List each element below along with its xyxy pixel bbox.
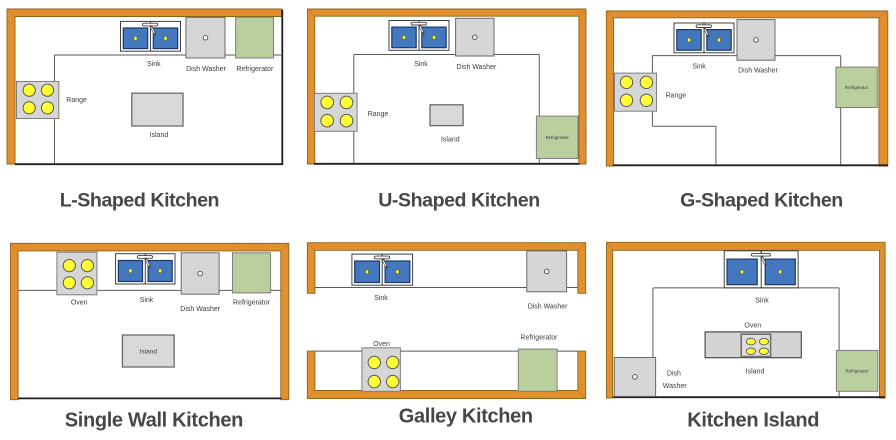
svg-text:Oven: Oven [71,299,88,306]
svg-text:Refrigerator: Refrigerator [846,368,870,373]
svg-text:Sink: Sink [692,64,706,71]
svg-text:Galley Kitchen: Galley Kitchen [399,406,533,428]
svg-text:Refrigerator: Refrigerator [233,299,271,306]
svg-text:Dish Washer: Dish Washer [180,306,220,313]
svg-text:Island: Island [746,368,765,375]
svg-text:Dish Washer: Dish Washer [456,64,496,71]
svg-text:Refrigerator: Refrigerator [236,66,274,73]
svg-text:Oven: Oven [744,322,761,329]
svg-text:Island: Island [150,132,169,139]
svg-text:Sink: Sink [140,297,154,304]
svg-text:Range: Range [66,97,87,104]
svg-text:Dish Washer: Dish Washer [186,66,226,73]
svg-text:Sink: Sink [755,298,769,305]
svg-text:L-Shaped Kitchen: L-Shaped Kitchen [60,190,219,212]
svg-text:Island: Island [441,136,460,143]
svg-text:Kitchen Island: Kitchen Island [687,410,819,432]
svg-text:Oven: Oven [373,341,390,348]
svg-text:G-Shaped Kitchen: G-Shaped Kitchen [680,190,843,212]
svg-text:Single Wall Kitchen: Single Wall Kitchen [65,410,243,432]
svg-text:Sink: Sink [414,61,428,68]
svg-text:Washer: Washer [663,383,688,390]
svg-text:Sink: Sink [374,295,388,302]
svg-text:Island: Island [140,349,158,356]
svg-text:U-Shaped Kitchen: U-Shaped Kitchen [378,190,540,212]
svg-text:Dish Washer: Dish Washer [738,67,778,74]
svg-text:Dish Washer: Dish Washer [528,303,568,310]
svg-text:Refrigerator: Refrigerator [845,85,869,90]
svg-text:Sink: Sink [147,61,161,68]
svg-text:Range: Range [368,111,389,118]
svg-text:Dish: Dish [667,370,681,377]
svg-text:Refrigerator: Refrigerator [546,135,570,140]
svg-text:Refrigerator: Refrigerator [521,334,559,341]
svg-text:Range: Range [666,92,687,99]
